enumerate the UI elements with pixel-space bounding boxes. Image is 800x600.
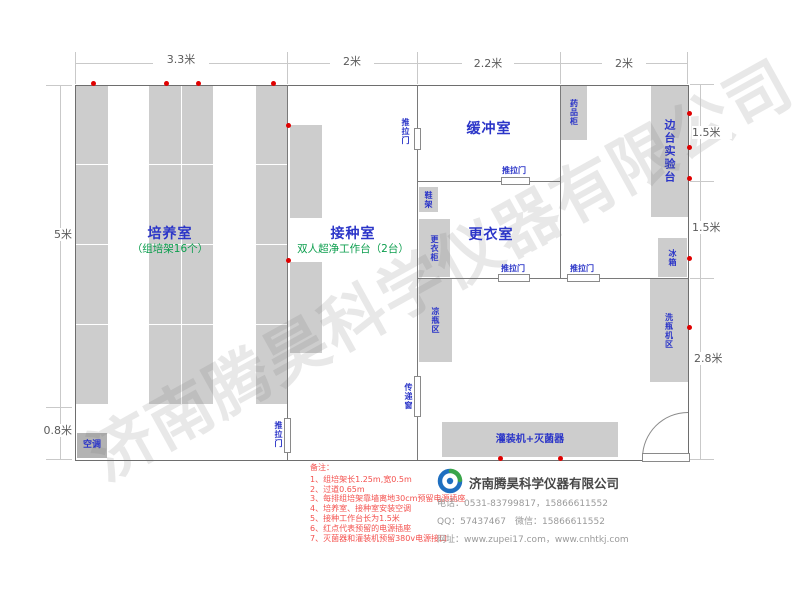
sliding-door-buffer xyxy=(414,128,421,150)
dim-top-1: 3.3米 xyxy=(153,53,209,66)
room-inoculation-label: 接种室 xyxy=(313,223,393,243)
dim-tick xyxy=(690,181,714,182)
sliding-door-cultivation xyxy=(284,418,291,453)
dim-left-1: 5米 xyxy=(32,228,72,241)
power-socket-dot xyxy=(558,456,563,461)
dim-tick xyxy=(287,52,288,84)
dim-top-3: 2.2米 xyxy=(462,57,514,70)
power-socket-dot xyxy=(164,81,169,86)
sliding-door-changing-right xyxy=(567,274,600,282)
dim-tick xyxy=(75,52,76,84)
dim-right-1: 1.5米 xyxy=(692,126,732,139)
dim-left-2: 0.8米 xyxy=(28,424,72,437)
sliding-door-cultivation-label: 推拉门 xyxy=(274,421,283,448)
company-website: 网址：www.zupei17.com，www.cnhtkj.com xyxy=(437,532,629,545)
dim-tick xyxy=(46,459,72,460)
power-socket-dot xyxy=(687,111,692,116)
dim-top-2: 2米 xyxy=(330,55,374,68)
power-socket-dot xyxy=(687,325,692,330)
room-buffer-label: 缓冲室 xyxy=(449,118,529,138)
dim-line-left xyxy=(60,85,61,460)
dim-tick xyxy=(46,407,72,408)
outer-wall xyxy=(75,85,689,461)
power-socket-dot xyxy=(196,81,201,86)
power-socket-dot xyxy=(286,258,291,263)
dim-right-2: 1.5米 xyxy=(692,221,732,234)
entrance-door-leaf xyxy=(642,453,690,462)
dim-tick xyxy=(417,52,418,84)
transfer-window-label: 传递窗 xyxy=(404,383,413,410)
dim-tick xyxy=(690,84,714,85)
power-socket-dot xyxy=(498,456,503,461)
dim-right-3: 2.8米 xyxy=(694,352,738,365)
power-socket-dot xyxy=(271,81,276,86)
sliding-door-h2b-label: 推拉门 xyxy=(565,264,599,273)
company-qq-wechat: QQ：57437467 微信：15866611552 xyxy=(437,514,605,527)
dim-line-right xyxy=(700,84,701,460)
power-socket-dot xyxy=(286,123,291,128)
transfer-window xyxy=(414,376,421,417)
power-socket-dot xyxy=(687,145,692,150)
dim-tick xyxy=(687,52,688,84)
dim-tick xyxy=(690,278,714,279)
wall-changing-washarea xyxy=(417,278,688,279)
sliding-door-changing-left xyxy=(498,274,530,282)
power-socket-dot xyxy=(687,256,692,261)
company-name: 济南腾昊科学仪器有限公司 xyxy=(469,473,619,492)
company-logo-icon xyxy=(437,468,463,494)
dim-tick xyxy=(690,459,714,460)
wall-cultivation-inoculation xyxy=(287,85,288,460)
room-changing-label: 更衣室 xyxy=(451,224,531,244)
wall-changing-sidebench xyxy=(560,85,561,278)
sliding-door-h1-label: 推拉门 xyxy=(497,166,531,175)
dim-tick xyxy=(560,52,561,84)
wall-buffer-changing xyxy=(417,181,560,182)
room-cultivation-sublabel: （组培架16个） xyxy=(118,241,222,256)
sliding-door-h2a-label: 推拉门 xyxy=(496,264,530,273)
company-phone: 电话：0531-83799817，15866611552 xyxy=(437,496,608,509)
sliding-door-buffer-label: 推拉门 xyxy=(401,118,410,145)
room-inoculation-sublabel: 双人超净工作台（2台） xyxy=(294,241,412,256)
floor-plan-canvas: 济南腾昊科学仪器有限公司 鞋架 更衣柜 凉瓶区 药品柜 边台实验台 冰箱 洗瓶机… xyxy=(0,0,800,600)
room-cultivation-label: 培养室 xyxy=(130,223,210,243)
power-socket-dot xyxy=(91,81,96,86)
dim-tick xyxy=(46,85,72,86)
sliding-door-buffer-changing xyxy=(501,177,530,185)
power-socket-dot xyxy=(687,176,692,181)
dim-top-4: 2米 xyxy=(602,57,646,70)
